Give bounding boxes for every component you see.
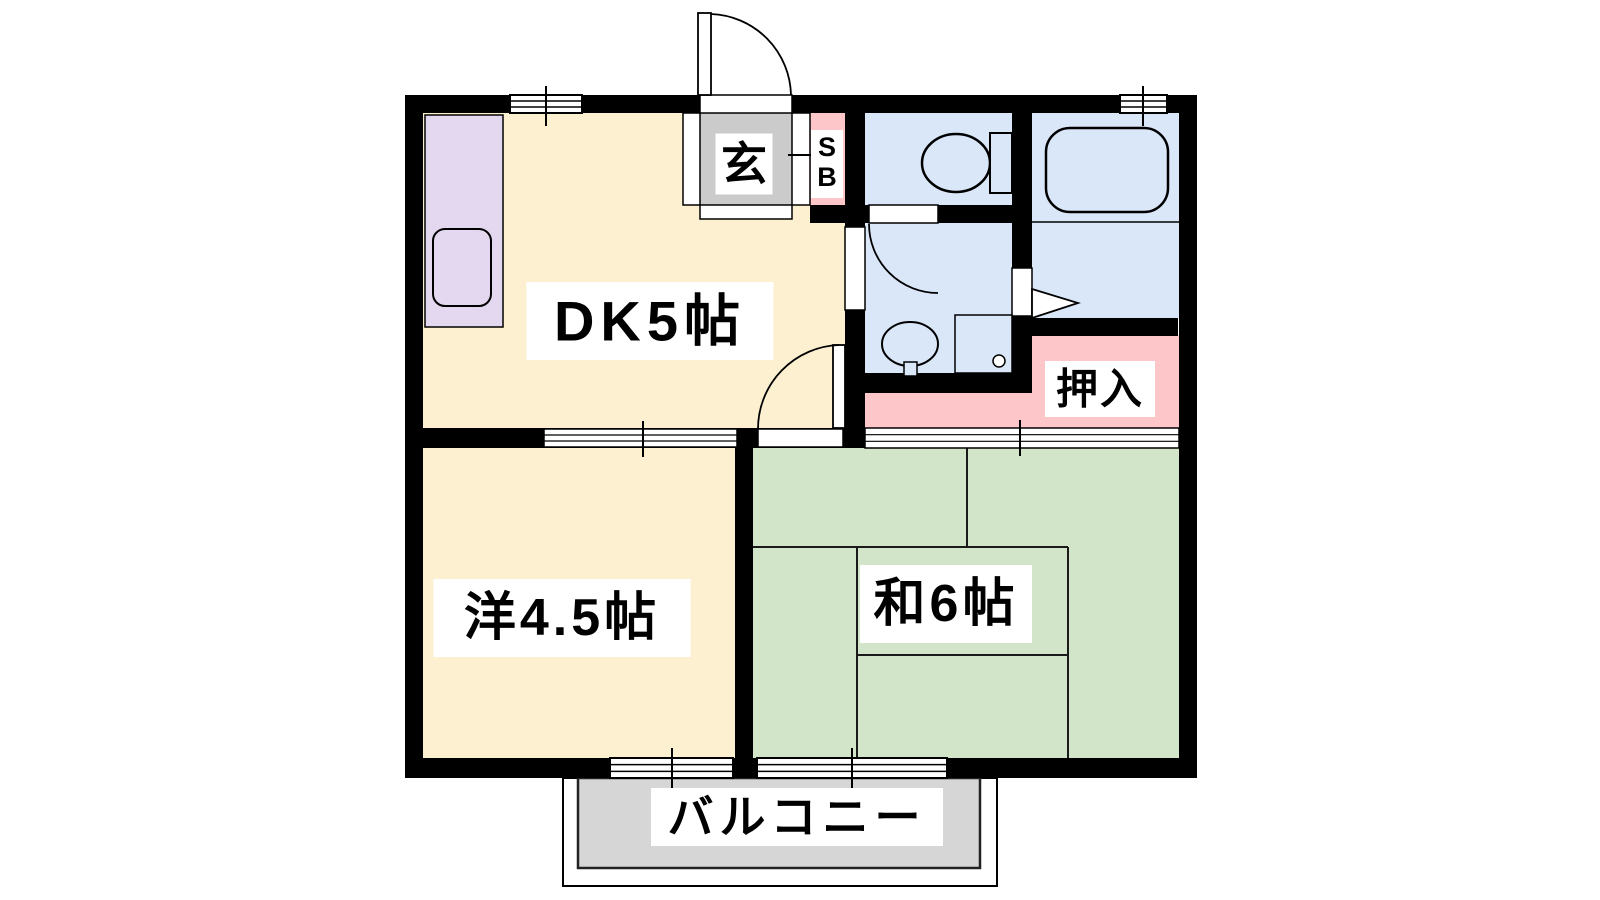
entrance-door-arc — [711, 14, 791, 95]
label-genkan: 玄 — [721, 138, 767, 190]
toilet-washroom-opening — [869, 205, 938, 223]
dk-japanese-opening — [758, 429, 843, 447]
label-western: 洋4.5帖 — [464, 589, 660, 647]
label-shoebox: SB — [817, 132, 837, 192]
wall — [1032, 318, 1178, 336]
genkan-frame-left — [683, 113, 700, 205]
entrance-door-leaf — [698, 13, 711, 95]
sliding-door-dk-western — [544, 429, 737, 447]
washing-machine-drain — [993, 355, 1005, 367]
floorplan-page: DK5帖洋4.5帖和6帖玄押入バルコニーSB — [0, 0, 1600, 900]
toilet-tank-icon — [990, 133, 1012, 193]
label-dk: DK5帖 — [554, 290, 746, 353]
wall — [1179, 95, 1197, 778]
genkan-frame-right — [792, 113, 810, 205]
toilet-icon — [922, 134, 990, 192]
wall — [845, 373, 1012, 393]
dk-door-leaf — [833, 345, 845, 428]
wall — [1012, 113, 1032, 393]
kitchen-sink-icon — [433, 229, 491, 306]
label-oshiire: 押入 — [1056, 366, 1144, 413]
washbasin-icon — [882, 322, 938, 366]
dk-washroom-opening — [845, 227, 865, 310]
entrance-opening — [700, 95, 792, 113]
washbasin-stem — [904, 362, 917, 376]
wall — [405, 95, 423, 778]
label-japanese: 和6帖 — [874, 575, 1019, 633]
genkan-step — [700, 205, 792, 219]
bath-door-opening — [1012, 268, 1032, 316]
fusuma-japanese-north — [865, 428, 1179, 448]
floorplan-drawing: DK5帖洋4.5帖和6帖玄押入バルコニーSB — [0, 0, 1600, 900]
bathtub-icon — [1046, 128, 1168, 212]
wall — [735, 448, 753, 758]
label-balcony: バルコニー — [667, 791, 926, 843]
